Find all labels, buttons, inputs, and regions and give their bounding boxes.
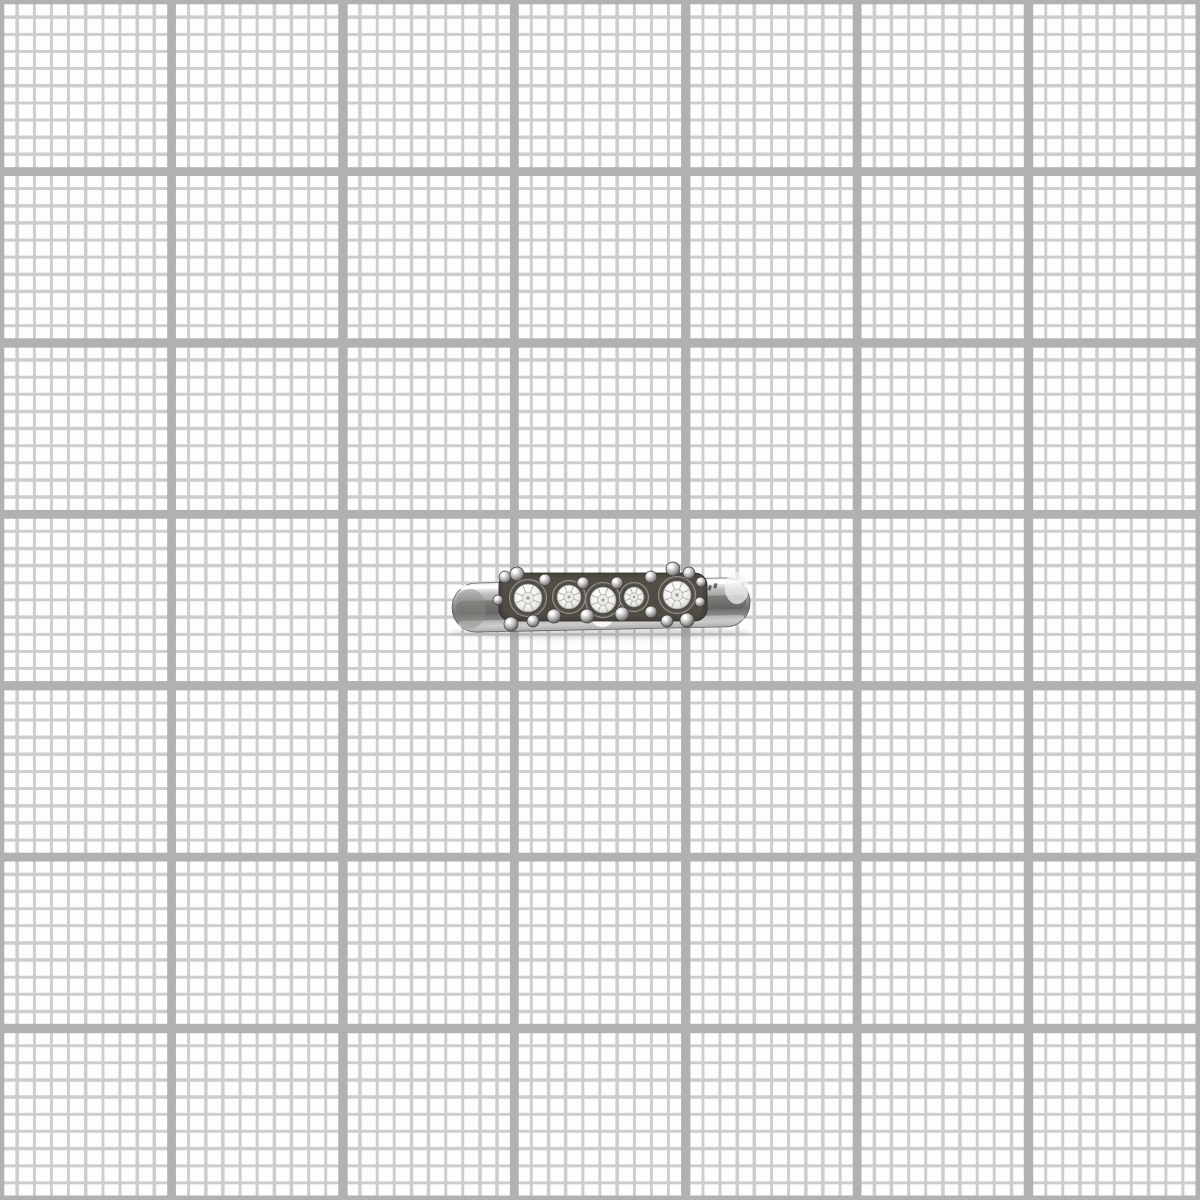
metal-bead [680,613,694,627]
metal-bead [661,615,673,627]
metal-bead [499,571,511,583]
crystal-stone [659,577,696,614]
metal-bead [683,567,695,579]
silver-ring-photo [444,550,760,650]
metal-bead [666,562,680,576]
metal-bead [645,571,657,583]
crystal-stone [510,580,547,617]
metal-bead [645,606,657,618]
metal-bead [493,595,503,605]
metal-bead [577,577,589,589]
metal-bead [611,577,623,589]
graph-paper-background [0,0,1200,1200]
metal-bead [580,609,594,623]
metal-bead [527,615,539,627]
metal-bead [695,597,705,607]
metal-bead [696,577,706,587]
metal-bead [547,609,561,623]
metal-bead [504,617,518,631]
metal-bead [510,567,524,581]
metal-bead [539,574,551,586]
metal-bead [615,607,629,621]
